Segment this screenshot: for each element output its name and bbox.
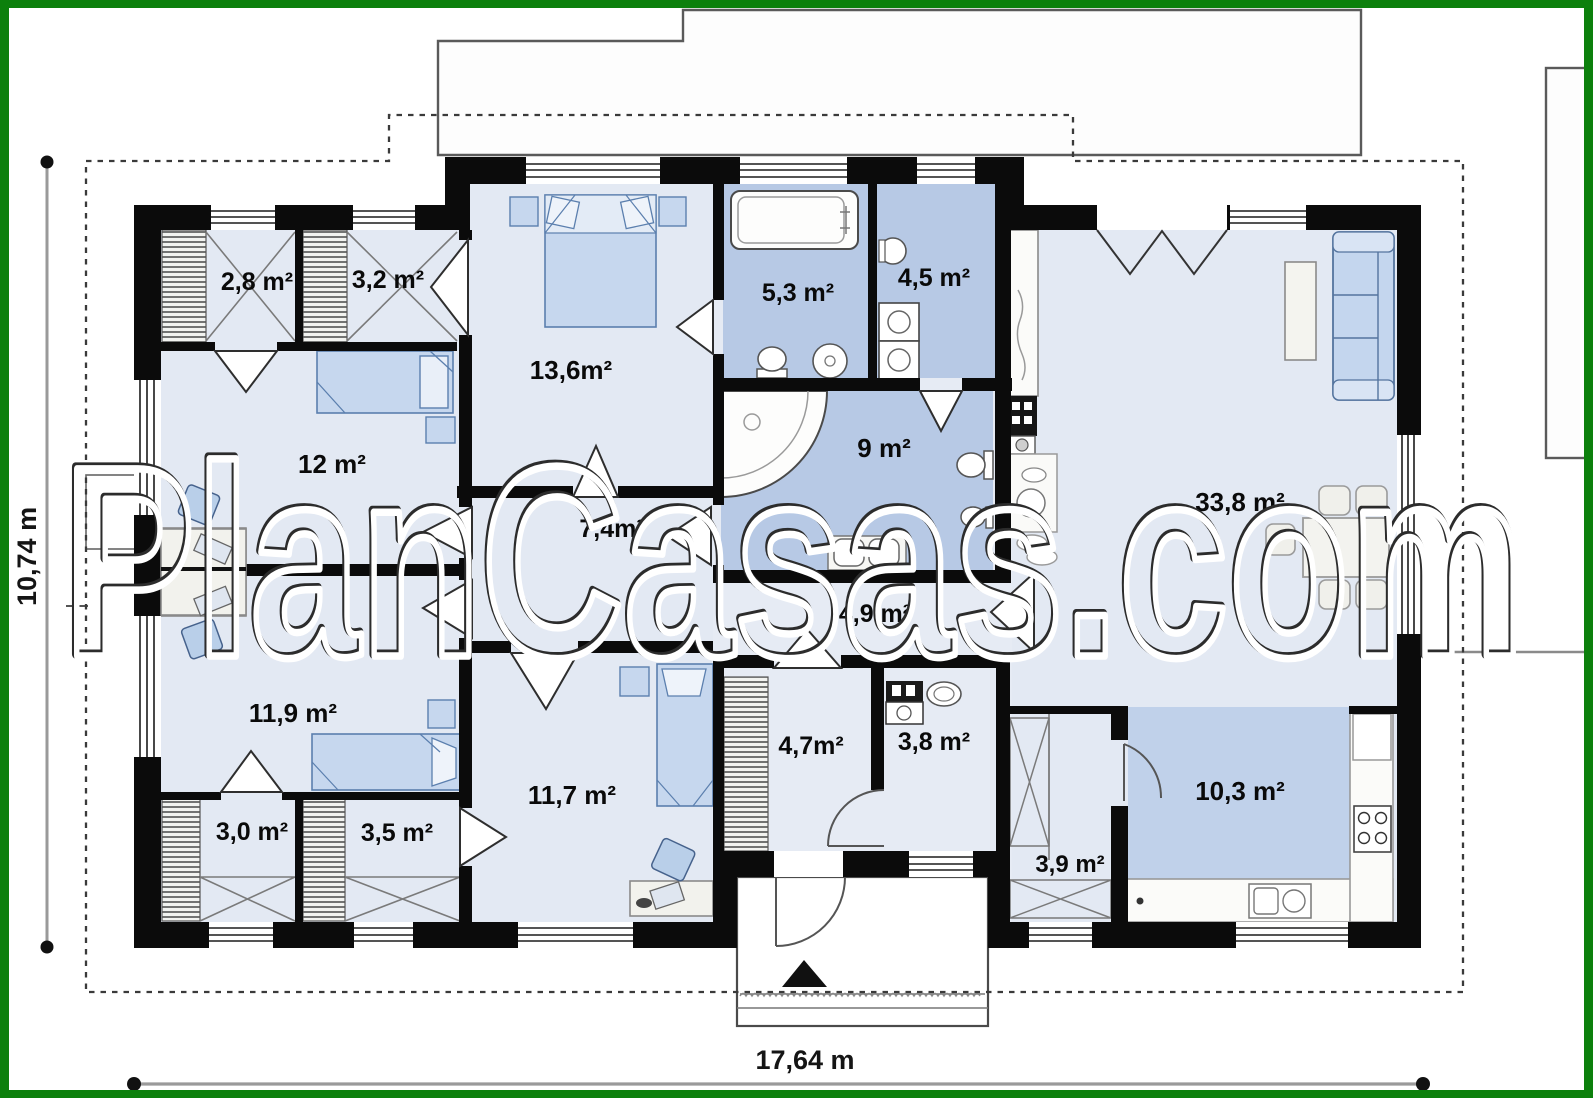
svg-text:3,9 m²: 3,9 m² <box>1035 851 1104 878</box>
svg-text:2,8 m²: 2,8 m² <box>221 268 293 296</box>
svg-text:3,0 m²: 3,0 m² <box>216 818 288 846</box>
svg-text:17,64 m: 17,64 m <box>755 1045 854 1075</box>
svg-text:3,8 m²: 3,8 m² <box>898 728 970 756</box>
svg-text:11,7 m²: 11,7 m² <box>528 780 617 810</box>
svg-text:10,74 m: 10,74 m <box>12 507 42 606</box>
svg-text:3,2 m²: 3,2 m² <box>352 266 424 294</box>
svg-text:13,6m²: 13,6m² <box>530 355 613 385</box>
svg-text:5,3 m²: 5,3 m² <box>762 279 834 307</box>
svg-text:10,3 m²: 10,3 m² <box>1195 776 1285 806</box>
svg-text:3,5 m²: 3,5 m² <box>361 819 433 847</box>
svg-text:4,5 m²: 4,5 m² <box>898 264 970 292</box>
svg-text:PlanCasas.com: PlanCasas.com <box>64 410 1526 714</box>
svg-text:4,7m²: 4,7m² <box>778 732 843 760</box>
